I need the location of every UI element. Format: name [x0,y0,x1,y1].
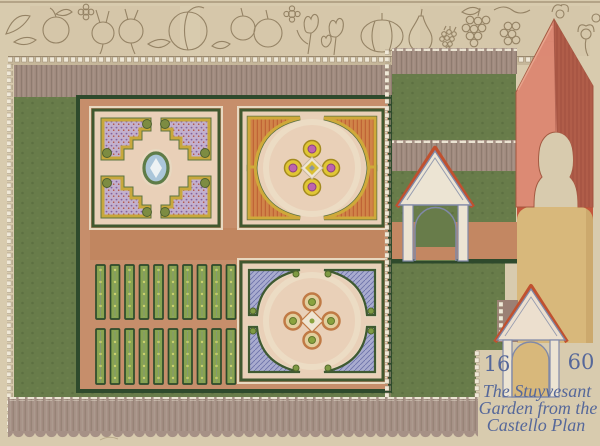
parterre-northeast [238,107,386,229]
board-fence [8,397,478,440]
garden-plan [78,97,391,393]
east-grounds [385,48,517,397]
fruit-frieze [0,2,600,56]
dotted-border-left [7,64,13,433]
artwork-canvas: 16 60 The Stuyvesant Garden from the Cas… [0,0,600,446]
parterre-southeast [238,259,386,383]
date-right: 60 [568,350,595,374]
title-line-3: Castello Plan [487,415,586,435]
parterre-northwest [90,107,222,229]
date-left: 16 [484,352,511,376]
oval-pond [141,150,171,186]
north-wall [14,65,392,97]
